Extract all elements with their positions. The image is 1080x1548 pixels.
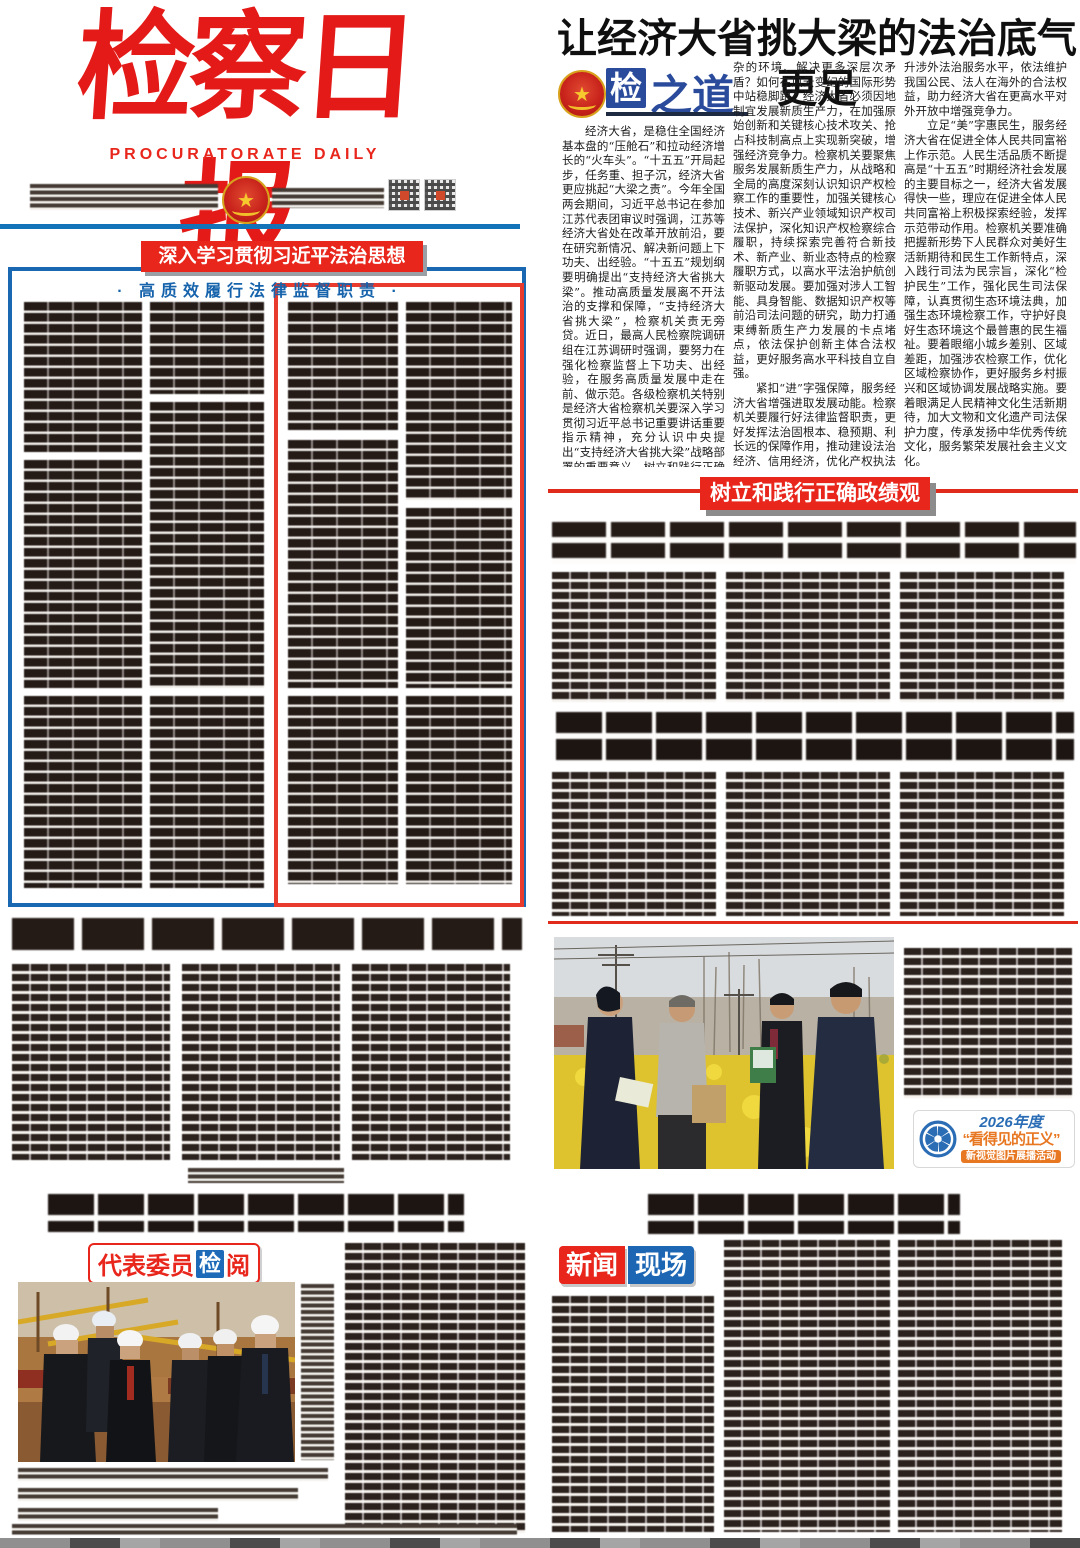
illegible-text-block <box>900 572 1064 702</box>
illegible-text-block <box>288 302 398 430</box>
badge-text: 检 <box>606 68 646 108</box>
illegible-text-block <box>150 302 264 394</box>
banner-rule-left <box>548 489 706 493</box>
photo-industrial-inspection-graphic <box>18 1282 295 1462</box>
illegible-caption <box>18 1508 218 1521</box>
blue-divider-rule <box>0 224 520 229</box>
badge-text: 现场 <box>628 1246 694 1284</box>
camera-aperture-icon <box>919 1120 957 1158</box>
illegible-text-block <box>726 572 890 702</box>
illegible-text-block <box>904 948 1072 1098</box>
illegible-publication-info <box>30 184 218 210</box>
illegible-text-block <box>552 1296 714 1532</box>
article-column-2: 杂的环境、解决更多深层次矛盾？如何在风云变幻的国际形势中站稳脚跟？经济大省必须因… <box>733 60 896 467</box>
illegible-text-block <box>24 302 142 452</box>
illegible-text-block <box>724 1240 890 1532</box>
illegible-text-block <box>345 1243 525 1533</box>
illegible-text-block <box>406 508 512 688</box>
photo-rapeseed-field-graphic <box>554 937 894 1169</box>
jianzhidao-column-badge: ★ 检 之道 <box>558 66 748 118</box>
emblem-star-icon: ★ <box>237 188 255 212</box>
section-divider-rule <box>548 921 1078 924</box>
badge-subtitle: 新视觉图片展播活动 <box>961 1150 1061 1163</box>
illegible-text-block <box>900 772 1064 916</box>
masthead-title: 检察日报 <box>25 0 466 147</box>
illegible-text-block <box>301 1284 334 1460</box>
section-banner: 树立和践行正确政绩观 <box>700 477 930 510</box>
qr-code-icon <box>424 179 456 211</box>
illegible-text-block <box>182 964 340 1160</box>
illegible-text-block <box>288 696 398 884</box>
illegible-byline <box>188 1168 344 1183</box>
illegible-headline <box>556 712 1074 762</box>
illegible-text-block <box>24 460 142 688</box>
left-theme-subline: · 高质效履行法律监督职责 · <box>60 277 460 301</box>
paragraph: 立足“美”字惠民生，服务经济大省在促进全体人民共同富裕上作示范。人民生活品质不断… <box>904 118 1067 467</box>
illegible-text-block <box>406 302 512 500</box>
illegible-text-block <box>24 696 142 888</box>
news-scene-badge: 新闻 现场 <box>559 1246 694 1284</box>
banner-rule-right <box>924 489 1078 493</box>
illegible-text-block <box>552 772 716 916</box>
masthead-subtitle: PROCURATORATE DAILY <box>30 146 460 164</box>
photo-rapeseed-field-visit <box>554 937 894 1169</box>
illegible-text-block <box>406 696 512 884</box>
article-column-3: 升涉外法治服务水平，依法维护我国公民、法人在海外的合法权益，助力经济大省在更高水… <box>904 60 1067 467</box>
badge-underline <box>606 112 748 116</box>
visible-justice-badge: 2026年度 “看得见的正义” 新视觉图片展播活动 <box>913 1110 1075 1168</box>
page-bottom-bar <box>0 1538 1080 1548</box>
illegible-headline <box>48 1194 464 1232</box>
illegible-text-block <box>12 964 170 1160</box>
illegible-text-block <box>288 440 398 688</box>
delegate-review-badge: 代表委员 检 阅 <box>88 1243 260 1284</box>
newspaper-front-page: 检察日报 PROCURATORATE DAILY ★ 深入学习贯彻习近平法治思想… <box>0 0 1080 1548</box>
illegible-caption <box>18 1468 328 1481</box>
badge-text: 检 <box>196 1250 224 1278</box>
illegible-text-block <box>150 402 264 688</box>
badge-text: 阅 <box>226 1246 250 1281</box>
illegible-text-block <box>12 1524 517 1535</box>
illegible-text-block <box>726 772 890 916</box>
illegible-headline <box>12 918 522 950</box>
procuratorate-emblem-icon: ★ <box>558 70 606 118</box>
article-column-1: 经济大省，是稳住全国经济基本盘的“压舱石”和拉动经济增长的“火车头”。“十五五”… <box>562 124 725 467</box>
paragraph: 杂的环境、解决更多深层次矛盾？如何在风云变幻的国际形势中站稳脚跟？经济大省必须因… <box>733 60 896 381</box>
illegible-caption <box>18 1488 298 1501</box>
paragraph: 经济大省，是稳住全国经济基本盘的“压舱石”和拉动经济增长的“火车头”。“十五五”… <box>562 124 725 467</box>
procuratorate-emblem-icon: ★ <box>222 176 270 224</box>
qr-code-icon <box>388 179 420 211</box>
illegible-publication-info <box>272 188 384 208</box>
illegible-text-block <box>552 572 716 702</box>
photo-industrial-inspection <box>18 1282 295 1462</box>
badge-title: “看得见的正义” <box>962 1132 1059 1149</box>
illegible-text-block <box>352 964 510 1160</box>
paragraph: 升涉外法治服务水平，依法维护我国公民、法人在海外的合法权益，助力经济大省在更高水… <box>904 60 1067 118</box>
illegible-headline <box>552 522 1076 564</box>
badge-text: 代表委员 <box>98 1246 194 1281</box>
badge-year: 2026年度 <box>979 1115 1042 1132</box>
illegible-text-block <box>150 696 264 888</box>
emblem-star-icon: ★ <box>573 82 591 106</box>
illegible-headline <box>648 1194 960 1234</box>
left-theme-banner: 深入学习贯彻习近平法治思想 <box>141 241 423 272</box>
paragraph: 紧扣“进”字强保障，服务经济大省增强进取发展动能。检察机关要履行好法律监督职责，… <box>733 381 896 467</box>
illegible-text-block <box>898 1240 1062 1532</box>
badge-text: 新闻 <box>559 1246 625 1284</box>
